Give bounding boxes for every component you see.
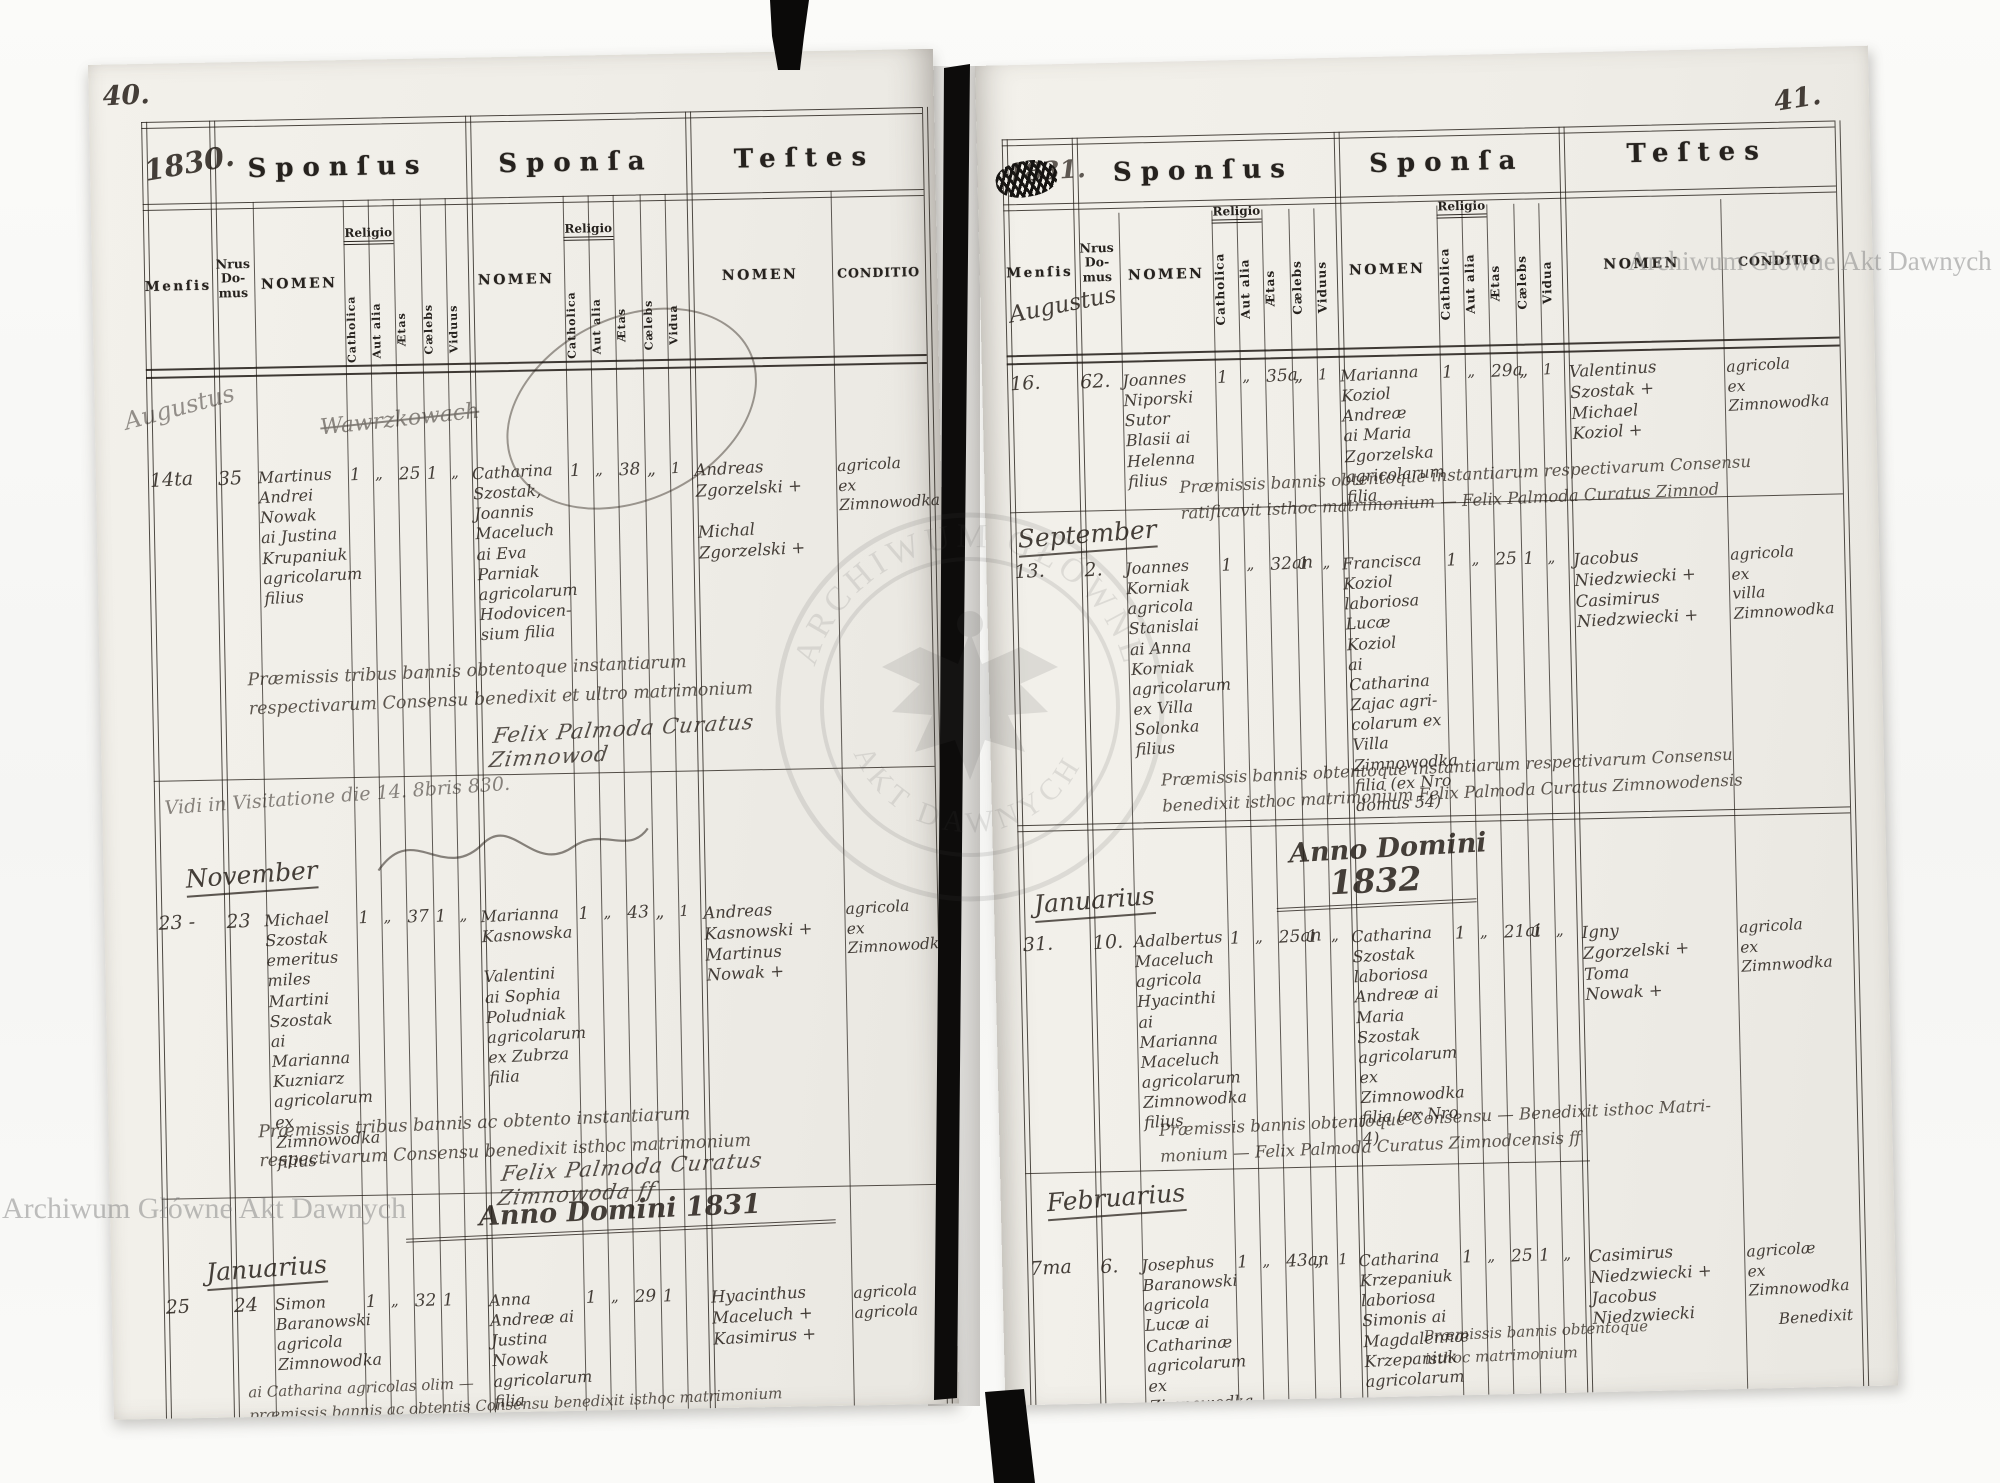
table-column-line [343,200,368,1415]
entry-p_cael: „ [646,459,669,482]
entry-conditio: agricola ex Zimnowodka [1726,352,1839,417]
entry-testes: Igny Zgorzelski + Toma Nowak + [1581,914,1736,1006]
mensis-label: Menſis [1005,264,1075,282]
entry-sponsa: Catharina Szostak laboriosa Andreæ ai Ma… [1351,922,1461,1149]
entry-s_aetas: 25 [398,463,425,486]
entry-testes: Hyacinthus Maceluch + Kasimirus + [711,1280,849,1350]
entry-sponsus: Josephus Baranowski agricola Lucæ ai Cat… [1141,1251,1241,1406]
viduus-label: Viduus [447,296,470,361]
entry-p_aut: „ [1467,361,1490,381]
aut-alia-sponsus-label: Aut alia [1237,236,1264,343]
table-column-line [368,200,393,1415]
entry-p_aetas: 43 [627,902,654,925]
entry-date: 25 [165,1293,228,1320]
table-row-line [1003,185,1836,211]
entry-sponsus: Joannes Korniak agricola Stanislai ai An… [1125,554,1226,760]
entry-house: 6. [1100,1254,1141,1280]
entry-s_cath: 1 [1237,1251,1260,1274]
entry-conditio: agricolæ ex Zimnowodka [1746,1236,1859,1301]
entry-p_vid: 1 [670,458,691,478]
nomen-sponsa-label: NOMEN [468,271,564,289]
entry-s_aut: „ [1254,927,1277,947]
entry-sponsa: Catharina Szostak, Joannis Maceluch ai E… [472,459,576,645]
table-column-line [831,191,856,1406]
sponsa-header: Sponſa [466,146,687,180]
table-section-line [1002,139,1037,1405]
conditio-label: CONDITIO [832,264,925,281]
entry-date: 14ta [149,467,212,494]
aetas-sponsus-label: Ætas [1262,235,1291,342]
left-page: 40. 1830. Sponſus Sponſa Teſtes Menſis N… [88,49,959,1420]
nomen-sponsus-label: NOMEN [1120,266,1213,284]
entry-s_aut: „ [390,1291,413,1311]
month-september: September [1017,514,1158,557]
entry-s_aetas: 25an [1278,926,1305,949]
sponsus-header: Sponſus [1072,153,1335,189]
entry-date: 23 - [158,910,221,937]
aetas-sponsus-label: Ætas [395,297,423,363]
entry-s_vid [467,1289,487,1290]
entry-p_cath: 1 [569,460,592,483]
entry-p_cath: 1 [578,903,601,926]
entry-p_cael: 1 [1531,921,1554,944]
entry-s_vid: „ [1330,925,1351,945]
entry-testes: Andreas Zgorzelski + Michal Zgorzelski + [694,454,834,565]
entry-p_aut: „ [610,1286,633,1306]
entry-house: 24 [233,1293,272,1319]
marriage-formula: Præmissis bannis obtentoque Consensu — B… [1158,1087,1850,1169]
entry-p_cael: „ [655,901,678,924]
entry-p_aetas: 38 [618,459,645,482]
entry-p_aetas: 25 [1511,1245,1538,1268]
entry-p_cath: 1 [1454,922,1477,945]
entry-testes: Valentinus Szostak + Michael Koziol + [1568,354,1723,446]
right-page: 41. 1831. Sponſus Sponſa Teſtes Menſis N… [975,46,1898,1406]
aut-alia-sponsus-label: Aut alia [370,297,396,362]
entry-sponsus: Joannes Niporski Sutor Blasii ai Helenna… [1122,366,1219,492]
entry-s_aetas: 32 [414,1290,441,1313]
entry-testes: Jacobus Niedzwiecki + Casimirus Niedzwie… [1573,542,1728,634]
entry-p_vid: „ [1563,1244,1584,1264]
entry-sponsa: Francisca Koziol laboriosa Lucæ Koziol a… [1342,549,1454,816]
nomen-sponsa-label: NOMEN [1337,261,1438,279]
entry-s_cath: 1 [1221,555,1244,578]
entry-s_cath: 1 [1229,928,1252,951]
entry-house: 62. [1080,369,1121,395]
entry-s_cael: 1 [426,463,449,486]
visitation-signature-flourish [372,810,653,885]
entry-s_aetas: 35a [1266,365,1293,388]
entry-p_aut: „ [603,902,626,922]
entry-s_cath: 1 [349,464,372,487]
entry-p_cath: 1 [1462,1246,1485,1269]
entry-p_vid [687,1285,707,1286]
year-box: 1830. [141,143,212,188]
entry-s_aut: „ [374,464,397,484]
entry-date: 7ma [1030,1255,1093,1282]
entry-p_cael: 1 [662,1285,685,1308]
nomen-testes-label: NOMEN [1562,254,1722,274]
entry-sponsa: Anna Andreæ ai Justina Nowak agricolarum… [489,1286,589,1412]
entry-s_vid: 1 [1338,1249,1359,1269]
page-number: 40. [102,79,151,112]
sponsa-header: Sponſa [1334,145,1560,180]
entry-p_vid: „ [1547,547,1568,567]
month-february: Februarius [1046,1178,1187,1221]
entry-p_aetas: 21ai [1503,921,1530,944]
scanned-register-photo: 40. 1830. Sponſus Sponſa Teſtes Menſis N… [0,0,2000,1483]
entry-s_vid: 1 [1318,365,1339,385]
entry-s_cath: 1 [365,1291,388,1314]
entry-p_aut: „ [1479,922,1502,942]
testes-header: Teſtes [686,141,924,176]
entry-conditio: agricola ex Zimnwodka [1739,913,1852,978]
entry-s_cael: „ [1314,1250,1337,1273]
entry-p_cael: 1 [1523,548,1546,571]
entry-p_cath: 1 [585,1287,608,1310]
aetas-sponsa-label: Ætas [1487,230,1516,337]
entry-p_vid: „ [1555,920,1576,940]
table-section-line [141,122,172,1419]
entry-testes: Casimirus Niedzwiecki + Jacobus Niedzwie… [1589,1238,1744,1330]
entry-s_aetas: 43an [1286,1250,1313,1273]
entry-p_aut: „ [1487,1246,1510,1266]
entry-p_vid: 1 [1543,359,1564,379]
entry-p_aut: „ [594,460,617,480]
nomen-sponsus-label: NOMEN [254,275,344,293]
viduus-label: Viduus [1314,234,1338,340]
entry-date: 13. [1014,558,1077,585]
entry-p_cath: 1 [1446,550,1469,573]
entry-p_cael: „ [1518,360,1541,383]
entry-sponsus: Adalbertus Maceluch agricola Hyacinthi a… [1133,927,1234,1133]
page-number: 41. [1772,80,1823,118]
entry-p_aut: „ [1471,549,1494,569]
table-row-line [143,189,924,211]
entry-house: 2. [1084,557,1125,583]
priest-signature: Felix Palmoda Curatus Zimnowod [488,703,875,772]
entry-s_cath: 1 [358,907,381,930]
entry-sponsa: Marianna Kasnowska Valentini ai Sophia P… [480,902,584,1088]
entry-conditio: agricola ex villa Zimnowodka [1730,540,1844,624]
entry-house: 35 [217,466,256,492]
entry-p_cath: 1 [1441,362,1464,385]
entry-s_aut: „ [1246,554,1269,574]
entry-p_cael: 1 [1539,1245,1562,1268]
entry-s_cael: „ [1294,365,1317,388]
entry-house: 10. [1092,930,1133,956]
entry-s_vid: „ [450,462,471,482]
entry-s_cath: 1 [1217,367,1240,390]
aut-alia-sponsa-label: Aut alia [1462,230,1489,337]
entry-s_cael: 1 [1306,926,1329,949]
benedixit-note: Benedixit [1778,1304,1889,1328]
mensis-label: Menſis [144,278,212,295]
crossed-out-entry: Wawrzkowach [319,399,481,441]
entry-conditio: agricola ex Zimnowodka [837,452,930,515]
entry-p_aetas: 25 [1495,548,1522,571]
month-january: Januarius [205,1250,328,1292]
entry-s_aut: „ [1242,366,1265,386]
entry-conditio: agricola agricola [853,1279,945,1323]
entry-house: 23 [226,909,265,935]
entry-s_aetas: 32an [1270,553,1297,576]
entry-date: 31. [1022,931,1085,958]
conditio-label: CONDITIO [1721,251,1837,269]
entry-p_aetas: 29a [1490,360,1517,383]
entry-date: 16. [1010,370,1073,397]
entry-sponsa: Catharina Krzepaniuk laboriosa Simonis a… [1358,1246,1468,1406]
entry-sponsus: Martinus Andrei Nowak ai Justina Krupani… [257,464,351,610]
sponsus-header: Sponſus [210,150,467,185]
caelebs-sponsus-label: Cælebs [422,296,448,361]
entry-conditio: agricola ex Zimnowodka [845,895,938,958]
entry-s_vid: „ [1322,552,1343,572]
month-november: November [185,855,319,897]
table-row-line [141,107,922,129]
testes-header: Teſtes [1559,135,1836,171]
catholica-sponsus-label: Catholica [1212,236,1239,343]
entry-testes: Andreas Kasnowski + Martinus Nowak + [703,896,842,986]
marriage-formula: Præmissis bannis obtentoque instantiarum… [1179,445,1836,526]
catholica-sponsa-label: Catholica [1437,231,1464,338]
nrus-domus-label: Nrus Do- mus [1074,241,1120,285]
entry-p_vid: 1 [679,901,700,921]
catholica-sponsus-label: Catholica [345,298,371,363]
entry-s_aut: „ [383,907,406,927]
table-row-line [1025,1160,1590,1174]
entry-s_cael: 1 [442,1290,465,1313]
table-section-line [209,121,240,1418]
nomen-testes-label: NOMEN [688,266,832,285]
month-august: Augustus [1007,282,1119,329]
entry-s_aetas: 37 [407,906,434,929]
entry-s_aut: „ [1262,1251,1285,1271]
entry-sponsus: Michael Szostak emeritus miles Martini S… [264,907,364,1173]
entry-sponsus: Simon Baranowski agricola Zimnowodka [274,1291,364,1376]
entry-sponsa: Marianna Koziol Andreæ ai Maria Zgorzels… [1339,361,1444,507]
entry-s_vid: „ [459,905,480,925]
entry-p_aetas: 29 [634,1286,661,1309]
vidua-label: Vidua [1539,229,1563,335]
entry-s_cael: 1 [435,906,458,929]
entry-s_cael: 1 [1298,553,1321,576]
caelebs-sponsa-label: Cælebs [1514,229,1541,336]
caelebs-sponsus-label: Cælebs [1289,234,1316,341]
